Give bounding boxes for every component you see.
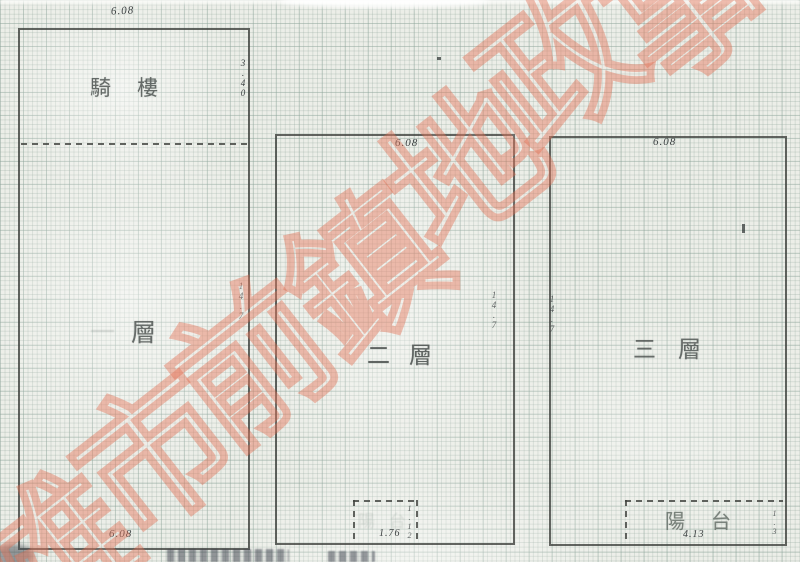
- dimension-balcony-depth-third: 1.3: [769, 509, 779, 536]
- watermark-char: 事: [571, 0, 800, 124]
- balcony-dashed-line: [625, 500, 627, 542]
- balcony-dashed-line: [625, 500, 783, 502]
- ink-speck: [437, 57, 441, 60]
- dimension-depth-third: 14.7: [547, 294, 557, 334]
- dimension-width-top-second: 6.08: [395, 137, 418, 149]
- arcade-divider-line: [21, 143, 247, 145]
- balcony-dashed-line: [353, 500, 418, 502]
- floor-label-third: 三層: [633, 330, 723, 364]
- dimension-width-top-third: 6.08: [653, 136, 676, 148]
- illegible-stamp-text: [328, 551, 375, 562]
- illegible-stamp-text: [167, 549, 289, 562]
- dimension-arcade-depth-first: 3.40: [238, 58, 248, 98]
- dimension-depth-first: 14.7: [236, 281, 246, 321]
- floor-label-first: 一 層: [90, 313, 156, 349]
- floor-label-char: 層: [131, 313, 156, 349]
- arcade-label: 騎樓: [90, 72, 184, 102]
- dimension-balcony-width-third: 4.13: [683, 529, 705, 540]
- dimension-balcony-depth-second: 1.12: [404, 504, 414, 540]
- floor-plan-first: 騎樓 一 層: [18, 28, 250, 550]
- balcony-dashed-line: [353, 500, 355, 541]
- floor-plan-third: 三層 陽台: [549, 136, 787, 546]
- floor-plan-second: 二層 陽台: [275, 134, 515, 545]
- dimension-balcony-width-second: 1.76: [379, 528, 401, 539]
- scanned-floor-plan-sheet: 騎樓 一 層 二層 陽台 三層 陽台 6.08 6.08 3.40 14.7 6…: [0, 0, 800, 562]
- dimension-width-bottom-first: 6.08: [109, 528, 132, 540]
- floor-label-char: 一: [90, 313, 115, 349]
- dimension-width-top-first: 6.08: [111, 4, 135, 17]
- dimension-depth-second: 14.7: [489, 290, 499, 330]
- scan-edge-blob: [280, 0, 490, 8]
- floor-label-second: 二層: [367, 336, 451, 370]
- balcony-label: 陽台: [665, 505, 757, 534]
